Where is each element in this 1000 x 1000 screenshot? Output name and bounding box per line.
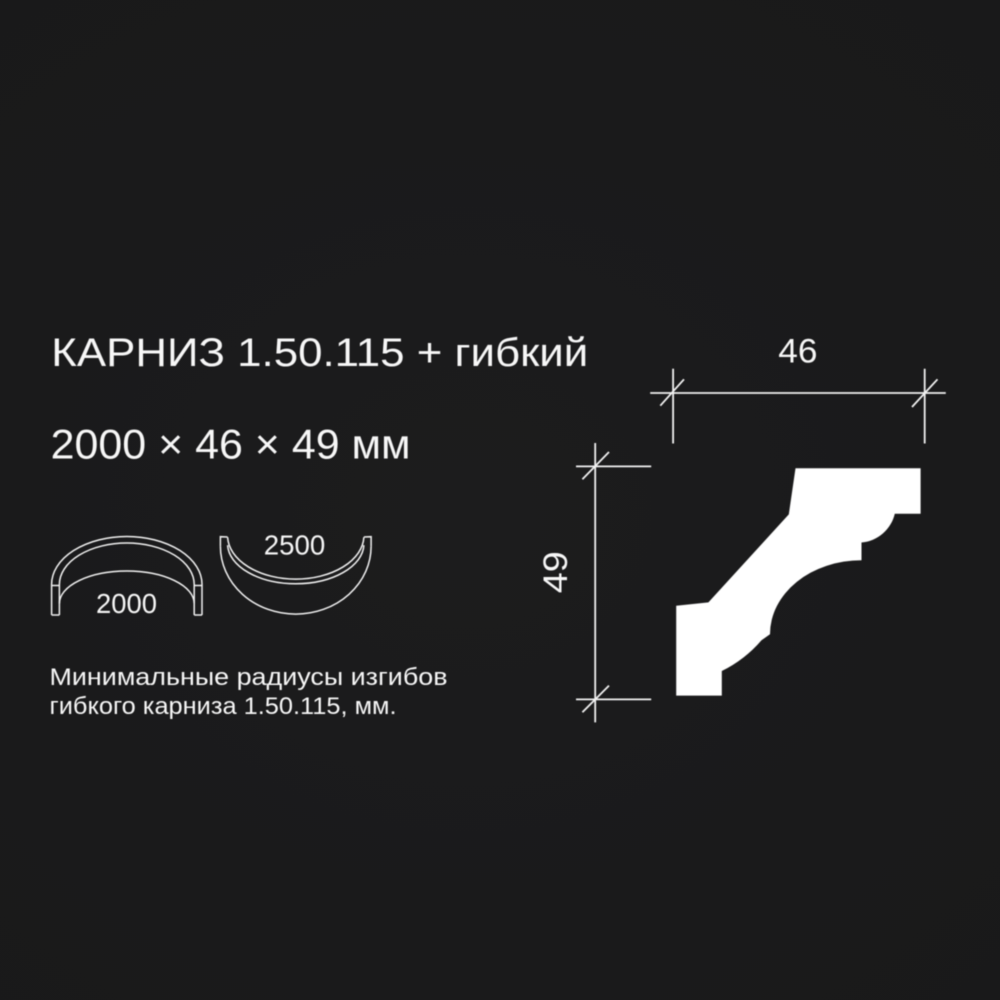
- svg-text:КАРНИЗ 1.50.115 + гибкий: КАРНИЗ 1.50.115 + гибкий: [51, 331, 588, 375]
- svg-text:46: 46: [778, 332, 817, 370]
- svg-text:2000 × 46 × 49 мм: 2000 × 46 × 49 мм: [51, 420, 411, 467]
- svg-text:Минимальные радиусы изгибов: Минимальные радиусы изгибов: [50, 664, 448, 691]
- svg-text:2000: 2000: [96, 588, 157, 619]
- svg-text:гибкого карниза 1.50.115, мм.: гибкого карниза 1.50.115, мм.: [50, 693, 397, 720]
- svg-text:2500: 2500: [264, 530, 326, 561]
- svg-text:49: 49: [537, 551, 575, 593]
